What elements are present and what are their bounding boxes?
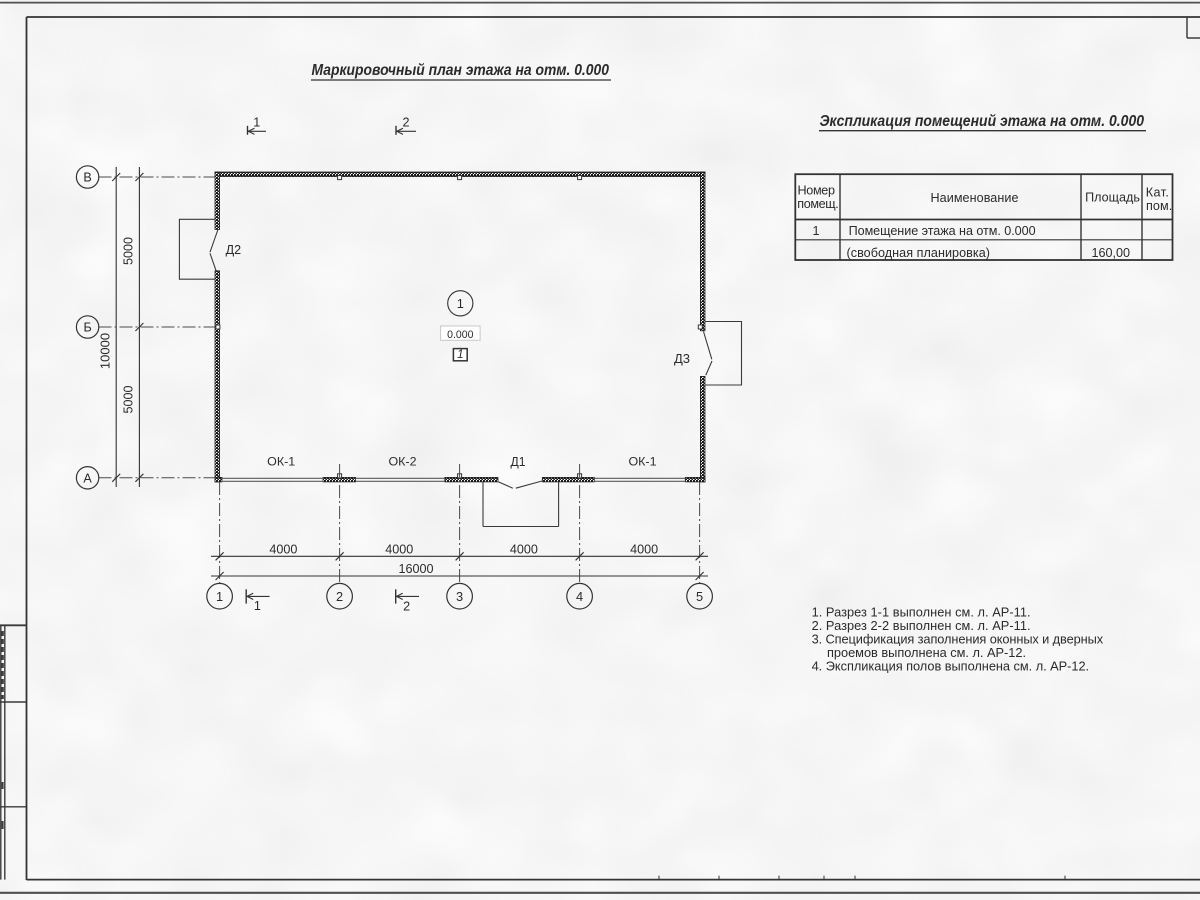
svg-text:1: 1 <box>457 296 464 311</box>
svg-text:А: А <box>83 472 92 486</box>
svg-text:ОК-2: ОК-2 <box>389 455 417 469</box>
svg-text:Маркировочный план этажа на от: Маркировочный план этажа на отм. 0.000 <box>312 62 610 79</box>
svg-text:Помещение этажа на отм. 0.000: Помещение этажа на отм. 0.000 <box>849 224 1036 238</box>
svg-text:пом.: пом. <box>1146 199 1172 213</box>
svg-text:1: 1 <box>253 115 260 129</box>
svg-text:5: 5 <box>696 589 703 604</box>
svg-text:3: 3 <box>456 589 463 604</box>
svg-text:(свободная планировка): (свободная планировка) <box>847 246 991 260</box>
svg-text:2: 2 <box>336 589 343 604</box>
svg-text:4000: 4000 <box>269 543 297 557</box>
svg-text:4000: 4000 <box>510 543 538 557</box>
svg-text:1: 1 <box>812 224 819 238</box>
svg-text:5000: 5000 <box>121 385 135 413</box>
svg-text:помещ.: помещ. <box>797 197 839 211</box>
svg-text:10000: 10000 <box>98 333 113 369</box>
svg-text:5000: 5000 <box>121 237 135 265</box>
svg-text:1: 1 <box>457 349 463 361</box>
svg-text:0.000: 0.000 <box>447 329 473 341</box>
svg-text:ОК-1: ОК-1 <box>267 455 295 469</box>
svg-text:4: 4 <box>576 589 583 604</box>
svg-text:1: 1 <box>254 599 261 613</box>
svg-text:16000: 16000 <box>398 562 433 576</box>
svg-text:Кат.: Кат. <box>1146 186 1169 200</box>
svg-text:Д1: Д1 <box>511 455 526 469</box>
svg-text:Наименование: Наименование <box>931 191 1019 205</box>
svg-text:Экспликация помещений этажа на: Экспликация помещений этажа на отм. 0.00… <box>820 113 1145 130</box>
svg-text:Д3: Д3 <box>674 352 690 366</box>
svg-text:2: 2 <box>403 600 410 614</box>
svg-text:Номер: Номер <box>798 184 836 198</box>
svg-text:ОК-1: ОК-1 <box>629 455 657 469</box>
svg-text:В: В <box>83 171 91 185</box>
svg-text:4. Экспликация полов выполнена: 4. Экспликация полов выполнена см. л. АР… <box>812 659 1090 674</box>
svg-text:Д2: Д2 <box>226 243 242 257</box>
svg-text:4000: 4000 <box>630 543 658 557</box>
svg-text:4000: 4000 <box>385 543 413 557</box>
svg-text:2: 2 <box>402 116 409 130</box>
svg-text:Площадь: Площадь <box>1085 191 1140 205</box>
svg-text:1: 1 <box>216 589 223 604</box>
svg-text:Б: Б <box>83 321 91 335</box>
svg-text:160,00: 160,00 <box>1092 246 1131 260</box>
